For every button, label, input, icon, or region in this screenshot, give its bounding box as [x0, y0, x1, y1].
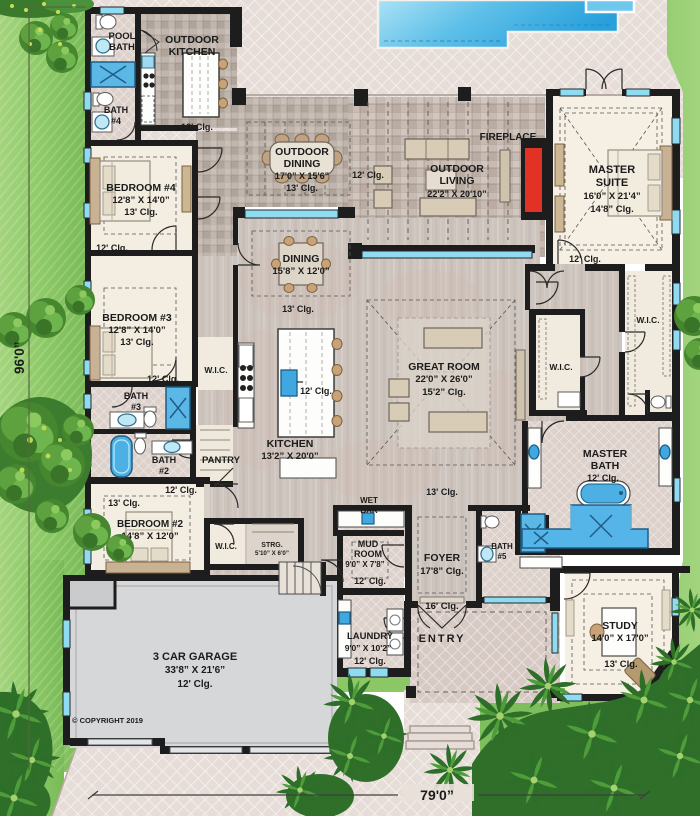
svg-text:© COPYRIGHT 2019: © COPYRIGHT 2019 — [72, 716, 143, 725]
svg-text:22'2” X 20'10”: 22'2” X 20'10” — [427, 189, 486, 199]
svg-text:5'10” X 6'0”: 5'10” X 6'0” — [255, 550, 289, 557]
svg-text:12' Clg.: 12' Clg. — [587, 473, 619, 483]
svg-text:DINING: DINING — [284, 158, 321, 170]
svg-text:FOYER: FOYER — [424, 552, 461, 564]
svg-text:13' Clg.: 13' Clg. — [120, 337, 153, 348]
svg-text:BEDROOM #4: BEDROOM #4 — [106, 182, 176, 194]
svg-text:KITCHEN: KITCHEN — [169, 46, 216, 58]
svg-text:12' Clg.: 12' Clg. — [96, 243, 128, 253]
svg-text:MASTER: MASTER — [583, 448, 628, 460]
svg-text:12'8” X 14'0”: 12'8” X 14'0” — [112, 195, 170, 206]
svg-text:#4: #4 — [111, 116, 121, 126]
svg-text:17'0” X 15'6”: 17'0” X 15'6” — [275, 171, 329, 181]
svg-text:15'8” X 12'0”: 15'8” X 12'0” — [272, 266, 330, 277]
svg-text:17'8” Clg.: 17'8” Clg. — [420, 566, 463, 577]
svg-text:LAUNDRY: LAUNDRY — [347, 631, 394, 642]
svg-text:LIVING: LIVING — [439, 175, 474, 187]
svg-text:BATH: BATH — [124, 391, 148, 401]
svg-text:12'8” X 14'0”: 12'8” X 14'0” — [108, 325, 166, 336]
svg-text:WET: WET — [360, 496, 378, 505]
svg-text:PANTRY: PANTRY — [202, 455, 241, 466]
svg-text:13' Clg.: 13' Clg. — [604, 659, 637, 670]
svg-text:13' Clg.: 13' Clg. — [286, 183, 318, 193]
svg-text:22'0” X 26'0”: 22'0” X 26'0” — [415, 374, 473, 385]
svg-text:BATH: BATH — [109, 42, 135, 53]
svg-text:12' Clg.: 12' Clg. — [165, 485, 197, 495]
svg-text:12' Clg.: 12' Clg. — [177, 679, 212, 690]
svg-text:BEDROOM #3: BEDROOM #3 — [102, 312, 172, 324]
svg-text:13'2” X 20'0”: 13'2” X 20'0” — [261, 451, 319, 462]
svg-text:12' Clg.: 12' Clg. — [354, 656, 386, 666]
svg-text:9'0” X 7'8”: 9'0” X 7'8” — [345, 560, 384, 569]
svg-text:96'0”: 96'0” — [12, 342, 27, 374]
svg-text:BAR: BAR — [360, 506, 378, 515]
svg-text:OUTDOOR: OUTDOOR — [430, 163, 484, 175]
svg-text:ENTRY: ENTRY — [419, 633, 466, 645]
svg-text:BATH: BATH — [104, 105, 128, 115]
svg-text:MASTER: MASTER — [589, 164, 636, 176]
svg-text:13' Clg.: 13' Clg. — [124, 207, 157, 218]
svg-text:STUDY: STUDY — [602, 620, 638, 632]
svg-text:16' Clg.: 16' Clg. — [425, 601, 458, 612]
svg-text:12' Clg.: 12' Clg. — [352, 170, 384, 180]
svg-text:#3: #3 — [131, 402, 141, 412]
svg-text:12' Clg.: 12' Clg. — [181, 122, 213, 132]
svg-text:15'2” Clg.: 15'2” Clg. — [422, 387, 465, 398]
svg-text:W.I.C.: W.I.C. — [215, 542, 237, 551]
svg-text:MUD: MUD — [358, 539, 379, 549]
svg-text:KITCHEN: KITCHEN — [267, 438, 314, 450]
svg-text:12' Clg.: 12' Clg. — [147, 374, 179, 384]
svg-text:#5: #5 — [498, 552, 507, 561]
svg-text:12' Clg.: 12' Clg. — [354, 576, 386, 586]
svg-text:ROOM: ROOM — [354, 549, 382, 559]
svg-text:13' Clg.: 13' Clg. — [108, 498, 140, 508]
svg-text:#2: #2 — [159, 466, 169, 476]
svg-text:3 CAR GARAGE: 3 CAR GARAGE — [153, 651, 237, 663]
svg-text:14'0” X 17'0”: 14'0” X 17'0” — [591, 633, 649, 644]
svg-text:9'0” X 10'2”: 9'0” X 10'2” — [345, 643, 392, 653]
svg-text:DINING: DINING — [283, 253, 320, 265]
svg-text:GREAT ROOM: GREAT ROOM — [408, 361, 480, 373]
svg-text:14'8” Clg.: 14'8” Clg. — [590, 204, 633, 215]
svg-text:OUTDOOR: OUTDOOR — [165, 34, 219, 46]
svg-text:13' Clg.: 13' Clg. — [426, 487, 458, 497]
svg-text:BEDROOM #2: BEDROOM #2 — [117, 519, 184, 530]
svg-text:W.I.C.: W.I.C. — [549, 362, 572, 372]
svg-text:33'8” X 21'6”: 33'8” X 21'6” — [165, 665, 225, 676]
svg-text:POOL: POOL — [109, 31, 136, 42]
svg-text:13' Clg.: 13' Clg. — [282, 304, 314, 314]
svg-text:79'0”: 79'0” — [420, 787, 454, 803]
svg-text:BATH: BATH — [491, 542, 513, 551]
svg-text:W.I.C.: W.I.C. — [204, 365, 227, 375]
svg-text:STRG.: STRG. — [261, 542, 282, 549]
svg-text:BATH: BATH — [591, 460, 619, 472]
svg-text:FIREPLACE: FIREPLACE — [480, 132, 537, 143]
svg-text:12' Clg.: 12' Clg. — [300, 386, 332, 396]
svg-text:BATH: BATH — [152, 455, 176, 465]
svg-text:W.I.C.: W.I.C. — [636, 315, 659, 325]
svg-text:SUITE: SUITE — [596, 177, 628, 189]
svg-text:12' Clg.: 12' Clg. — [569, 254, 601, 264]
svg-text:16'0” X 21'4”: 16'0” X 21'4” — [583, 191, 641, 202]
svg-text:OUTDOOR: OUTDOOR — [275, 146, 329, 158]
